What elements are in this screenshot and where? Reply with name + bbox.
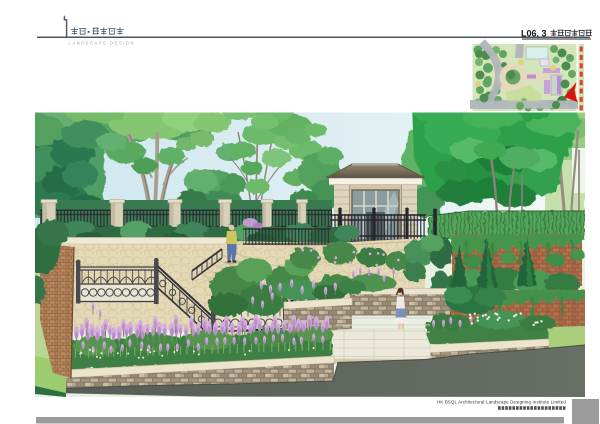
svg-text:HK BSQL Architectural Landscap: HK BSQL Architectural Landscape Designin…	[437, 400, 566, 405]
svg-text:LANDSCAPE DESIGN: LANDSCAPE DESIGN	[69, 40, 136, 45]
svg-text:L06. 3: L06. 3	[521, 28, 547, 38]
